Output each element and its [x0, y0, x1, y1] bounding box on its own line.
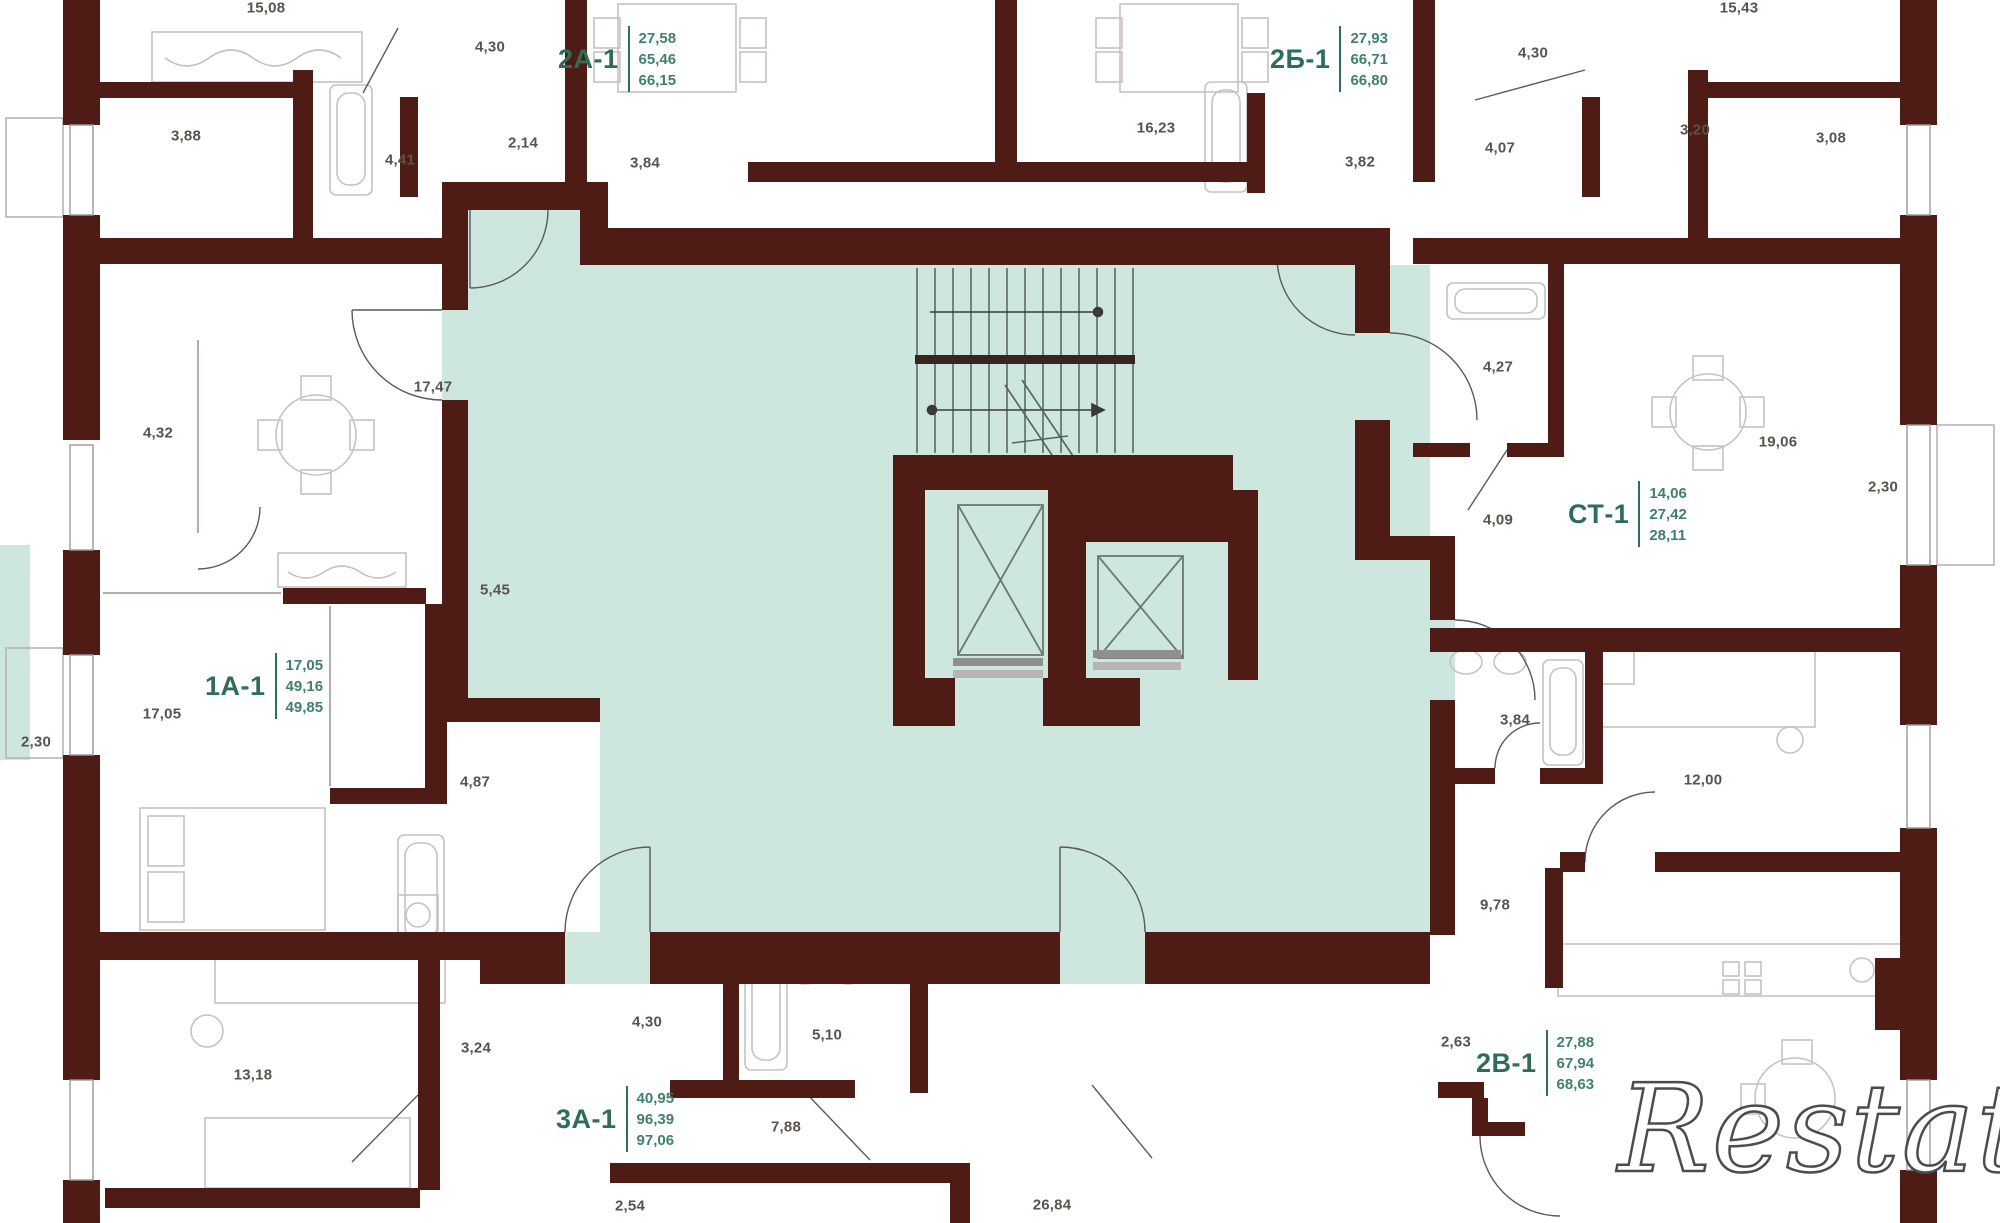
apartment-code: 1А-1 [205, 671, 266, 702]
label-divider [275, 653, 277, 719]
label-divider [1339, 26, 1341, 92]
apartment-label-3a1: 3А-1 40,95 96,39 97,06 [556, 1086, 674, 1152]
area-value: 14,06 [1649, 483, 1687, 504]
dim-label: 3,20 [1680, 122, 1710, 139]
area-value: 27,88 [1557, 1032, 1595, 1053]
dim-label: 3,84 [1500, 712, 1530, 729]
apartment-label-2v1: 2В-1 27,88 67,94 68,63 [1476, 1030, 1594, 1096]
dim-label: 16,23 [1137, 120, 1176, 137]
dim-label: 3,84 [630, 155, 660, 172]
dim-label: 4,30 [1518, 45, 1548, 62]
area-value: 40,95 [637, 1088, 675, 1109]
apartment-code: 2Б-1 [1270, 44, 1330, 75]
apartment-label-2b1: 2Б-1 27,93 66,71 66,80 [1270, 26, 1388, 92]
stair-landing-divider [915, 355, 1135, 364]
dim-label: 4,07 [1485, 140, 1515, 157]
dim-label: 15,08 [247, 0, 286, 17]
area-value: 66,71 [1350, 49, 1388, 70]
label-divider [628, 26, 630, 92]
area-value: 28,11 [1649, 525, 1687, 546]
dim-label: 2,30 [21, 734, 51, 751]
area-value: 27,93 [1350, 28, 1388, 49]
area-value: 27,58 [639, 28, 677, 49]
apartment-label-1a1: 1А-1 17,05 49,16 49,85 [205, 653, 323, 719]
apartment-code: 3А-1 [556, 1104, 617, 1135]
area-value: 68,63 [1557, 1074, 1595, 1095]
dim-label: 3,24 [461, 1040, 491, 1057]
area-value: 97,06 [637, 1130, 675, 1151]
dim-label: 17,05 [143, 706, 182, 723]
area-value: 65,46 [639, 49, 677, 70]
apartment-code: СТ-1 [1568, 499, 1629, 530]
apartment-label-2a1: 2А-1 27,58 65,46 66,15 [558, 26, 676, 92]
dim-label: 7,88 [771, 1119, 801, 1136]
dim-label: 3,08 [1816, 130, 1846, 147]
dim-label: 3,82 [1345, 154, 1375, 171]
dim-label: 2,54 [615, 1198, 645, 1215]
apartment-code: 2В-1 [1476, 1048, 1537, 1079]
apartment-label-ct1: СТ-1 14,06 27,42 28,11 [1568, 481, 1687, 547]
dim-label: 26,84 [1033, 1197, 1072, 1214]
area-value: 96,39 [637, 1109, 675, 1130]
partitions [103, 340, 330, 786]
restate-watermark: Restate [1618, 1058, 2000, 1200]
dim-label: 19,06 [1759, 434, 1798, 451]
dim-label: 4,41 [385, 152, 415, 169]
dim-label: 5,10 [812, 1027, 842, 1044]
dim-label: 13,18 [234, 1067, 273, 1084]
floor-plan-drawing [0, 0, 2000, 1223]
dim-label: 12,00 [1684, 772, 1723, 789]
dim-label: 4,87 [460, 774, 490, 791]
floor-plan: 15,08 4,30 3,88 4,41 2,14 3,84 16,23 3,8… [0, 0, 2000, 1223]
dim-label: 5,45 [480, 582, 510, 599]
area-value: 49,85 [286, 697, 324, 718]
dim-label: 17,47 [414, 379, 453, 396]
area-value: 66,15 [639, 70, 677, 91]
dim-label: 4,32 [143, 425, 173, 442]
dim-label: 4,09 [1483, 512, 1513, 529]
dim-label: 2,14 [508, 135, 538, 152]
dim-label: 9,78 [1480, 897, 1510, 914]
dim-label: 15,43 [1720, 0, 1759, 17]
area-value: 67,94 [1557, 1053, 1595, 1074]
label-divider [626, 1086, 628, 1152]
label-divider [1638, 481, 1640, 547]
dim-label: 2,63 [1441, 1034, 1471, 1051]
dim-label: 4,27 [1483, 359, 1513, 376]
area-value: 27,42 [1649, 504, 1687, 525]
apartment-code: 2А-1 [558, 44, 619, 75]
area-value: 17,05 [286, 655, 324, 676]
dim-label: 3,88 [171, 128, 201, 145]
area-value: 49,16 [286, 676, 324, 697]
dim-label: 4,30 [475, 39, 505, 56]
dim-label: 4,30 [632, 1014, 662, 1031]
label-divider [1546, 1030, 1548, 1096]
area-value: 66,80 [1350, 70, 1388, 91]
dim-label: 2,30 [1868, 479, 1898, 496]
